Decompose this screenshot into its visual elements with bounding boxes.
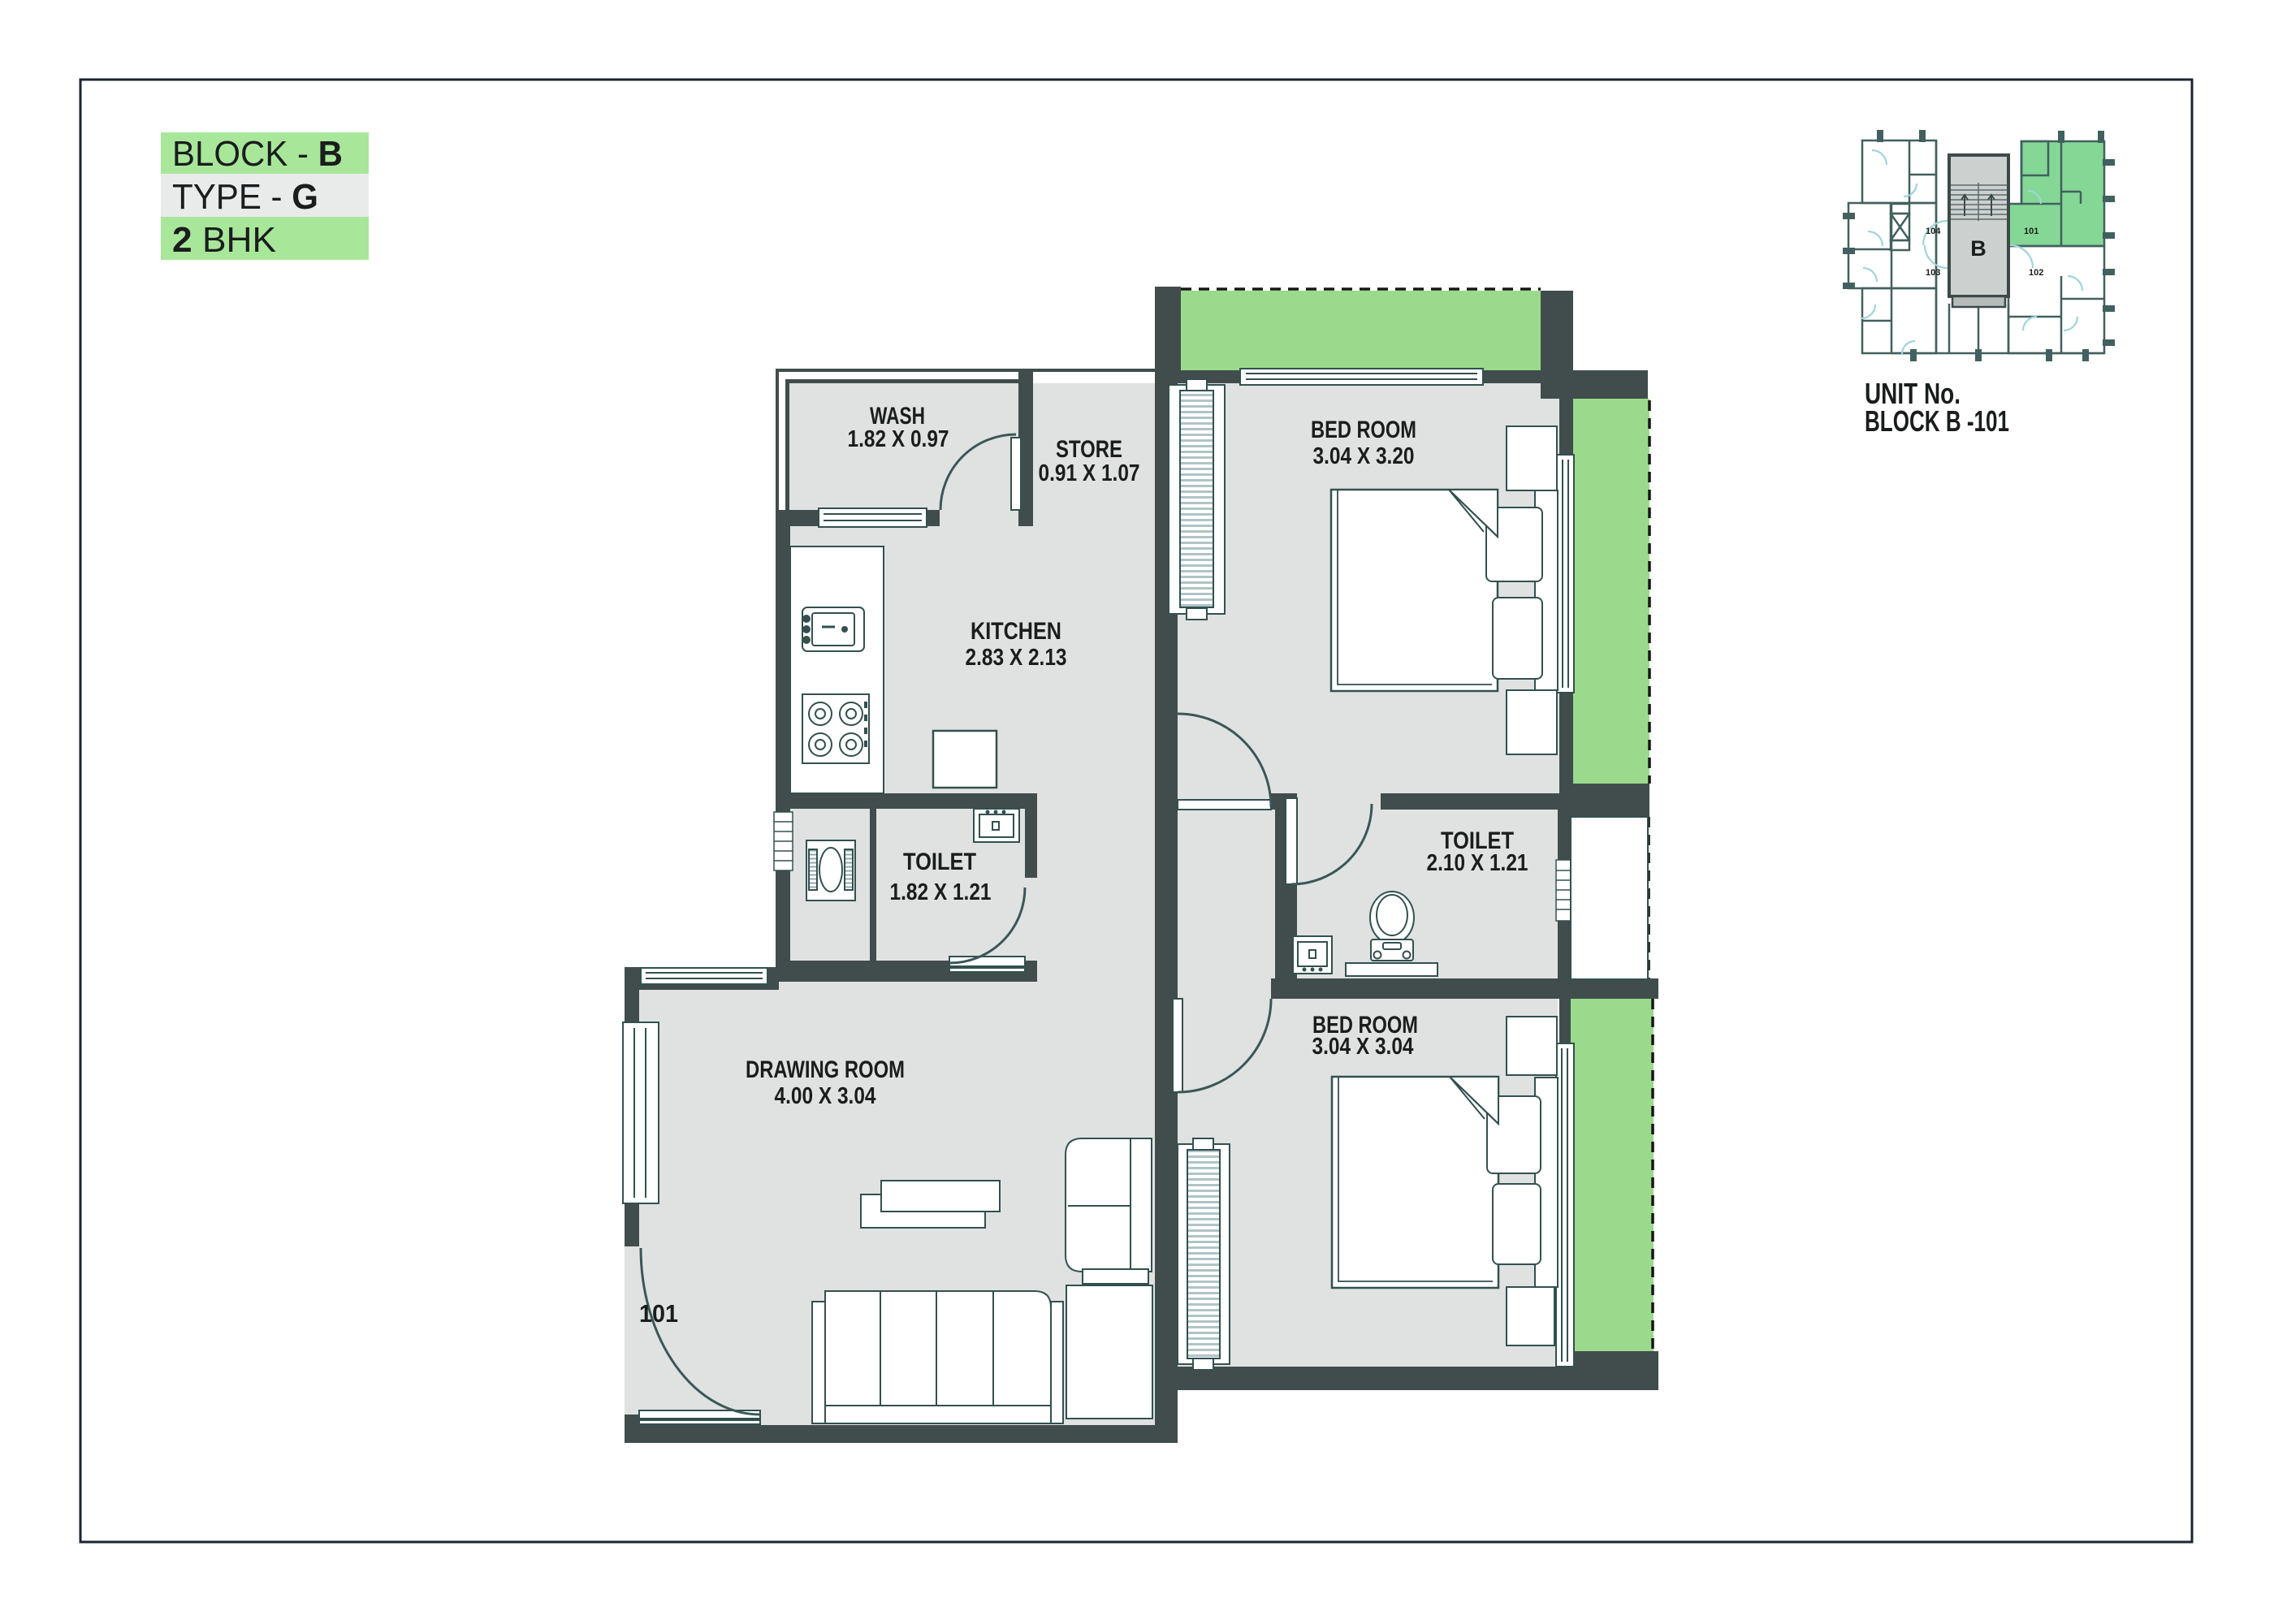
svg-text:102: 102	[2029, 268, 2043, 278]
svg-text:2.10 X 1.21: 2.10 X 1.21	[1427, 850, 1528, 876]
svg-text:STORE: STORE	[1056, 436, 1122, 463]
svg-text:4.00 X 3.04: 4.00 X 3.04	[775, 1083, 876, 1109]
svg-text:BLOCK - B: BLOCK - B	[172, 134, 343, 174]
svg-text:TOILET: TOILET	[903, 849, 976, 875]
svg-text:1.82 X 0.97: 1.82 X 0.97	[848, 426, 949, 452]
svg-text:3.04 X 3.04: 3.04 X 3.04	[1312, 1034, 1414, 1060]
svg-text:0.91 X 1.07: 0.91 X 1.07	[1039, 460, 1140, 486]
svg-text:B: B	[1970, 236, 1987, 261]
svg-text:KITCHEN: KITCHEN	[971, 618, 1061, 645]
svg-text:BED ROOM: BED ROOM	[1311, 417, 1416, 443]
svg-text:DRAWING ROOM: DRAWING ROOM	[746, 1056, 905, 1083]
svg-text:BLOCK B -101: BLOCK B -101	[1865, 404, 2009, 438]
svg-text:2.83 X 2.13: 2.83 X 2.13	[966, 645, 1067, 671]
svg-text:TYPE - G: TYPE - G	[172, 177, 318, 217]
svg-text:103: 103	[1926, 268, 1940, 278]
svg-text:101: 101	[639, 1299, 678, 1328]
svg-text:104: 104	[1926, 227, 1941, 236]
svg-text:2 BHK: 2 BHK	[172, 220, 276, 260]
svg-text:3.04 X 3.20: 3.04 X 3.20	[1313, 443, 1415, 469]
svg-text:101: 101	[2024, 227, 2038, 236]
svg-text:1.82 X 1.21: 1.82 X 1.21	[890, 879, 992, 905]
